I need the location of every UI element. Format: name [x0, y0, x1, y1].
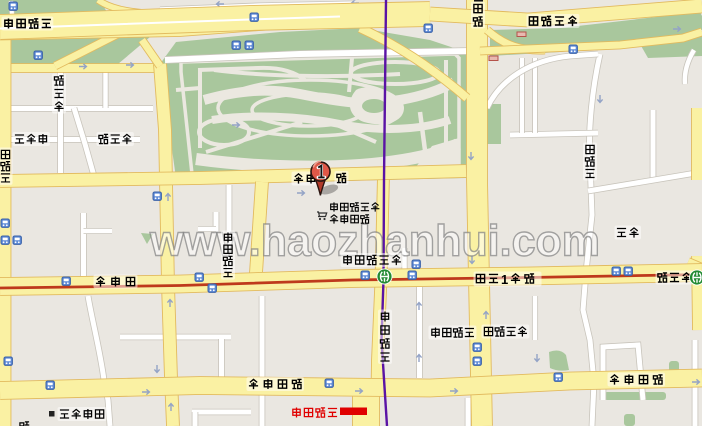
svg-text:1: 1 [501, 272, 508, 287]
